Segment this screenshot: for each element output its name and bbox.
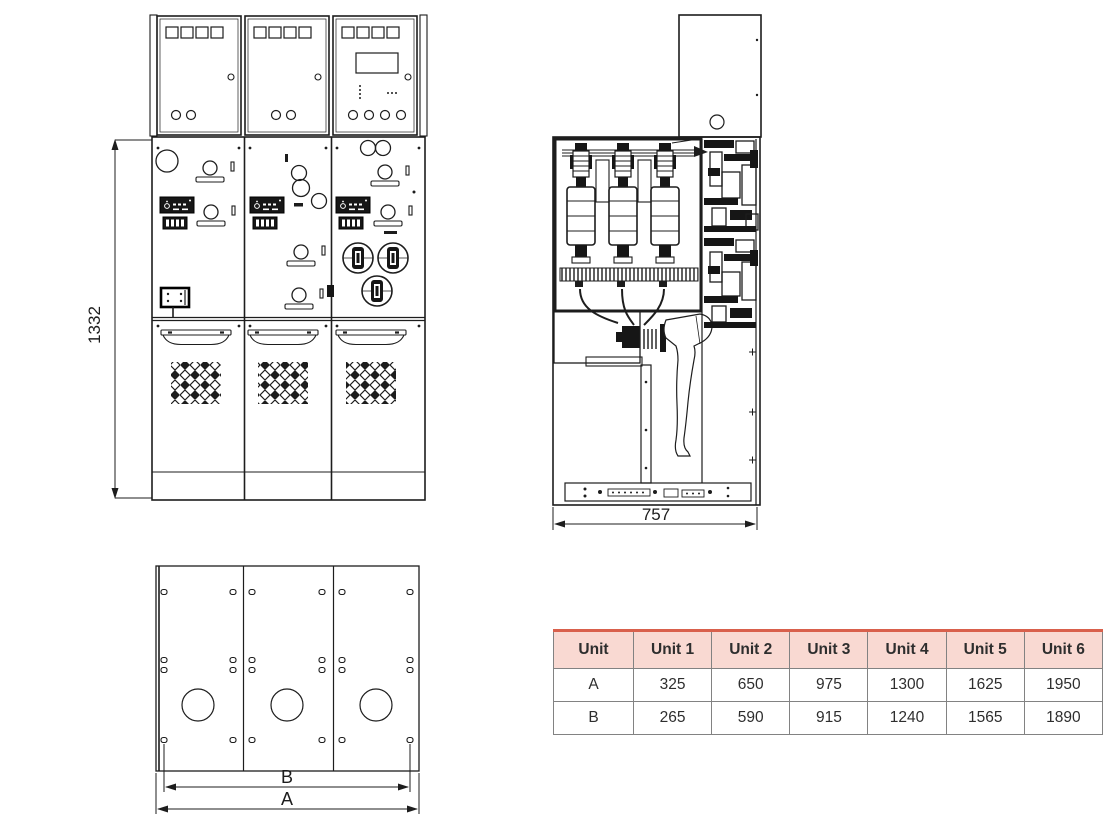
cell-A-1: 325 [634,669,712,702]
front-panel-1 [156,150,235,318]
earth-switch-shaft [285,288,323,309]
bottom-view-drawing: B A [145,558,435,822]
front-view-drawing: 1332 [80,8,440,520]
ventilation-mesh [258,362,308,404]
base-frame [565,483,751,501]
fuse-holder [343,243,373,273]
lv-box-2 [245,16,329,135]
lock-box [161,288,189,318]
base-plate [156,566,419,771]
fuse-holder [378,243,408,273]
unit-dimension-table: Unit Unit 1 Unit 2 Unit 3 Unit 4 Unit 5 … [553,629,1103,735]
lv-box-3-relay [333,16,417,135]
elephant-trunk-cable [664,314,712,456]
front-panel-2 [250,154,327,309]
cell-B-4: 1240 [868,702,946,735]
col-header-unit: Unit [554,631,634,669]
mechanism-upper [704,140,758,232]
earth-switch-shaft [197,205,235,226]
ventilation-mesh [346,362,396,404]
switch-operating-shaft [371,165,409,186]
table-row-B: B 265 590 915 1240 1565 1890 [554,702,1103,735]
side-top-duct [679,15,761,137]
side-mechanism-stack [702,139,758,505]
bushing-and-fuse-canister [567,143,595,263]
side-width-dimension: 757 [553,505,757,530]
ventilation-mesh [171,362,221,404]
col-header-unit-1: Unit 1 [634,631,712,669]
cable-termination [616,314,712,456]
switch-operating-shaft [196,161,234,182]
cell-A-3: 975 [790,669,868,702]
cell-A-5: 1625 [946,669,1024,702]
viewport-window [156,150,178,172]
bushing-and-fuse-canister [651,143,679,263]
col-header-unit-5: Unit 5 [946,631,1024,669]
dim-1332-label: 1332 [85,306,104,344]
cell-A-2: 650 [712,669,790,702]
busbar-assembly [560,268,698,281]
side-switch-chamber [555,139,708,311]
fixing-holes-middle-rows [161,658,413,673]
dim-B-label: B [281,767,293,787]
front-cable-compartment-doors [161,330,406,404]
col-header-unit-3: Unit 3 [790,631,868,669]
cell-B-1: 265 [634,702,712,735]
gas-indicator-and-keypad [160,197,194,229]
front-height-dimension: 1332 [85,139,152,499]
technical-drawing-sheet: 1332 [0,0,1120,825]
cell-B-6: 1890 [1024,702,1102,735]
lv-box-1 [157,16,241,135]
front-panel-3 [327,141,412,307]
table-header-row: Unit Unit 1 Unit 2 Unit 3 Unit 4 Unit 5 … [554,631,1103,669]
bushing-and-fuse-canister [609,143,637,263]
earth-switch-shaft [374,205,412,226]
door-handle [161,330,231,345]
fixing-holes-top-row [161,590,413,595]
front-main-body [152,137,425,500]
row-label-B: B [554,702,634,735]
switch-operating-shaft [287,245,325,266]
gas-indicator-and-keypad [336,197,370,229]
col-header-unit-4: Unit 4 [868,631,946,669]
dim-757-label: 757 [642,505,670,524]
door-latch [327,285,334,297]
col-header-unit-2: Unit 2 [712,631,790,669]
cell-A-6: 1950 [1024,669,1102,702]
dim-A-label: A [281,789,293,809]
row-label-A: A [554,669,634,702]
front-lv-compartment [150,15,427,136]
door-handle [336,330,406,345]
cell-A-4: 1300 [868,669,946,702]
side-view-drawing: 757 [545,8,775,535]
cell-B-3: 915 [790,702,868,735]
fuse-holder [362,276,392,306]
gas-indicator-and-keypad [250,197,284,229]
table-row-A: A 325 650 975 1300 1625 1950 [554,669,1103,702]
bottom-dimension-B: B [164,744,410,792]
cable-runs [580,289,664,325]
fixing-holes-bottom-row [161,738,413,743]
col-header-unit-6: Unit 6 [1024,631,1102,669]
door-handle [248,330,318,345]
mechanism-lower [704,238,758,328]
cell-B-2: 590 [712,702,790,735]
cell-B-5: 1565 [946,702,1024,735]
cable-entry-holes [182,689,392,721]
relay-display [356,53,398,73]
